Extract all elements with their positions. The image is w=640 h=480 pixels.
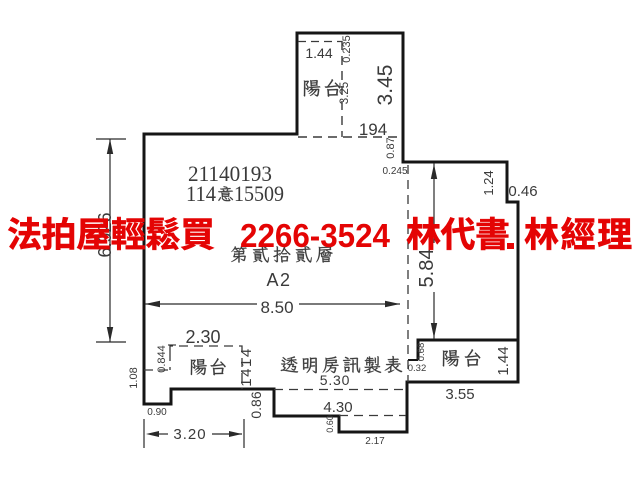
svg-text:0.46: 0.46 xyxy=(508,183,537,200)
svg-text:1.44: 1.44 xyxy=(305,45,332,61)
svg-text:A2: A2 xyxy=(266,270,291,290)
svg-text:2266-3524: 2266-3524 xyxy=(240,217,391,254)
svg-text:0.235: 0.235 xyxy=(341,35,353,63)
svg-text:1.24: 1.24 xyxy=(481,170,496,195)
svg-text:8.50: 8.50 xyxy=(260,298,293,317)
svg-text:5.84: 5.84 xyxy=(416,249,438,288)
svg-text:3.45: 3.45 xyxy=(374,65,397,106)
svg-text:0.60: 0.60 xyxy=(325,415,335,433)
svg-text:0.86: 0.86 xyxy=(248,391,264,418)
svg-text:3.55: 3.55 xyxy=(445,386,474,403)
svg-text:0.844: 0.844 xyxy=(156,345,168,373)
svg-text:0.87: 0.87 xyxy=(385,137,397,158)
svg-text:3.25: 3.25 xyxy=(339,82,351,104)
svg-text:5.30: 5.30 xyxy=(320,372,350,388)
svg-text:1414: 1414 xyxy=(238,347,255,386)
svg-text:3.20: 3.20 xyxy=(173,426,206,443)
svg-text:0.32: 0.32 xyxy=(408,363,427,374)
svg-text:0.68: 0.68 xyxy=(416,343,427,362)
svg-text:0.90: 0.90 xyxy=(147,407,167,418)
svg-text:2.17: 2.17 xyxy=(365,436,385,447)
svg-text:1.44: 1.44 xyxy=(495,346,512,375)
svg-text:15509: 15509 xyxy=(234,181,284,206)
svg-text:194: 194 xyxy=(359,120,387,139)
svg-text:1.08: 1.08 xyxy=(128,367,140,388)
svg-text:2.30: 2.30 xyxy=(185,327,220,347)
svg-text:114: 114 xyxy=(186,181,216,206)
svg-text:0.245: 0.245 xyxy=(382,166,407,177)
svg-text:4.30: 4.30 xyxy=(323,399,352,416)
